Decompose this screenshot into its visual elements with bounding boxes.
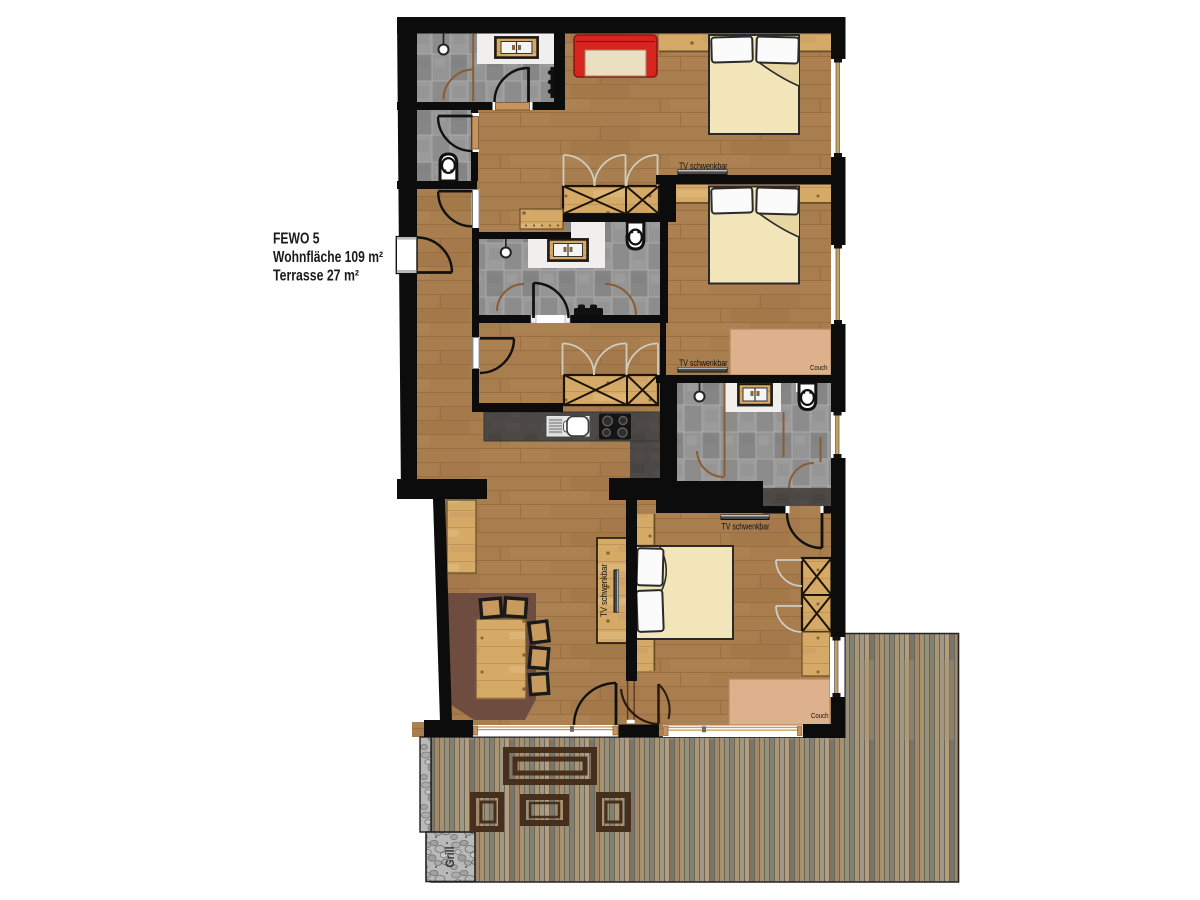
svg-text:Couch: Couch [811,711,829,720]
svg-text:Terrasse 27 m²: Terrasse 27 m² [273,268,359,285]
svg-text:Couch: Couch [810,363,828,372]
svg-text:FEWO 5: FEWO 5 [273,231,320,248]
svg-text:Grill: Grill [445,847,457,868]
svg-text:TV schwenkbar: TV schwenkbar [679,358,728,368]
svg-text:TV schwenkbar: TV schwenkbar [722,522,770,532]
svg-text:Wohnfläche 109 m²: Wohnfläche 109 m² [273,249,383,266]
svg-text:TV schwenkbar: TV schwenkbar [679,161,728,171]
svg-text:TV schwenkbar: TV schwenkbar [599,564,609,617]
